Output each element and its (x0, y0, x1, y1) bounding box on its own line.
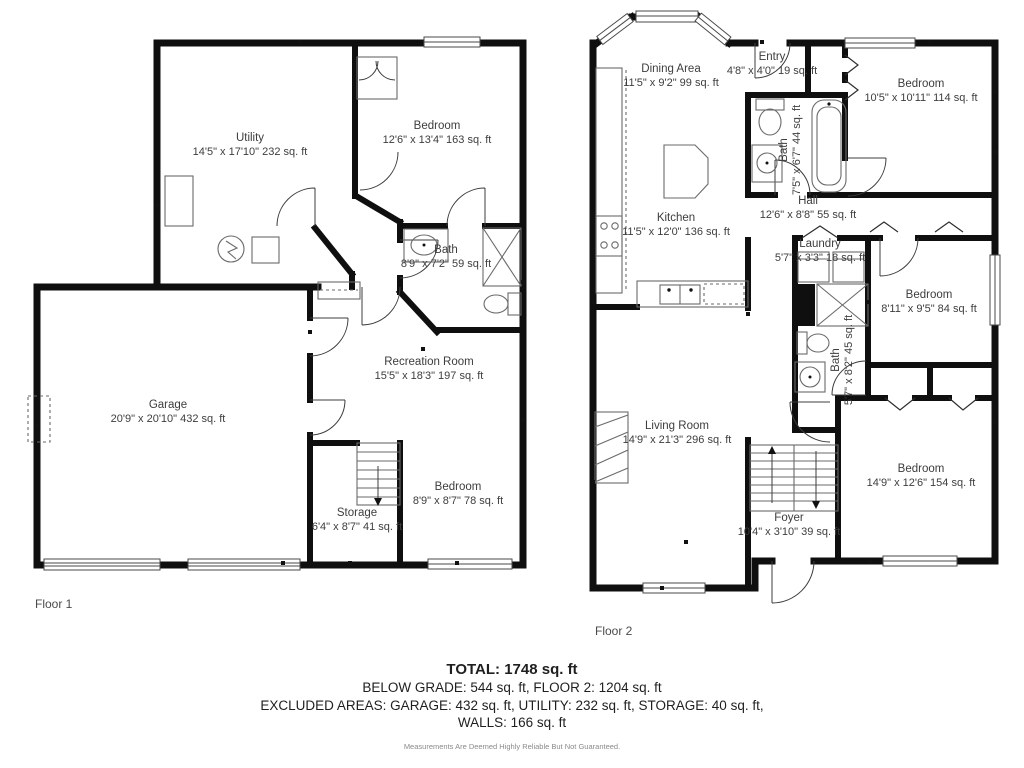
wall-chase (793, 284, 815, 326)
room-label-storage: Storage 6'4" x 8'7" 41 sq. ft (272, 506, 442, 534)
kitchen-island (664, 145, 708, 198)
floor1-caption: Floor 1 (35, 597, 72, 611)
toilet-tank (797, 332, 807, 354)
closet (357, 57, 397, 99)
kitchen-counter (596, 68, 622, 293)
equipment-box (252, 237, 279, 263)
room-label-bedroom-f1b: Bedroom 8'9" x 8'7" 78 sq. ft (373, 480, 543, 508)
room-label-laundry: Laundry 5'7" x 3'3" 18 sq. ft (735, 237, 905, 265)
closet-chevron-icon (885, 398, 915, 410)
door-arc-icon (447, 188, 485, 226)
room-label-entry: Entry 4'8" x 4'0" 19 sq. ft (687, 50, 857, 78)
door-arc-icon (310, 400, 345, 435)
summary-line2: BELOW GRADE: 544 sq. ft, FLOOR 2: 1204 s… (0, 679, 1024, 697)
room-label-bedroom-f2a: Bedroom 10'5" x 10'11" 114 sq. ft (836, 77, 1006, 105)
closet-chevron-icon (935, 222, 963, 232)
stairs-icon (750, 445, 838, 511)
room-label-living-room: Living Room 14'9" x 21'3" 296 sq. ft (592, 419, 762, 447)
room-label-recreation-room: Recreation Room 15'5" x 18'3" 197 sq. ft (344, 355, 514, 383)
summary-line4: WALLS: 166 sq. ft (0, 714, 1024, 732)
floorplan-drawing (0, 0, 1024, 768)
summary-disclaimer: Measurements Are Deemed Highly Reliable … (0, 742, 1024, 751)
toilet-icon (807, 334, 829, 352)
floorplan-page: Utility 14'5" x 17'10" 232 sq. ft Bedroo… (0, 0, 1024, 768)
summary-total: TOTAL: 1748 sq. ft (0, 661, 1024, 679)
water-heater-icon (165, 176, 193, 226)
area-summary: TOTAL: 1748 sq. ft BELOW GRADE: 544 sq. … (0, 661, 1024, 751)
dishwasher (704, 284, 744, 304)
room-label-garage: Garage 20'9" x 20'10" 432 sq. ft (83, 398, 253, 426)
closet-chevron-icon (949, 398, 978, 410)
toilet-tank (508, 293, 521, 315)
summary-line3: EXCLUDED AREAS: GARAGE: 432 sq. ft, UTIL… (0, 697, 1024, 715)
electrical-panel-icon (218, 236, 244, 262)
floor2-caption: Floor 2 (595, 624, 632, 638)
garage-door (44, 559, 160, 570)
room-label-foyer: Foyer 10'4" x 3'10" 39 sq. ft (704, 511, 874, 539)
room-label-bedroom-f2b: Bedroom 8'11" x 9'5" 84 sq. ft (844, 288, 1014, 316)
door-arc-icon (362, 287, 400, 325)
closet-chevron-icon (870, 222, 898, 232)
door-arc-icon (848, 158, 886, 196)
room-label-utility: Utility 14'5" x 17'10" 232 sq. ft (165, 131, 335, 159)
room-label-bath-f2-upper: Bath 7'5" x 6'7" 44 sq. ft (778, 105, 804, 195)
door-arc-icon (277, 188, 315, 226)
door-arc-icon (310, 318, 348, 356)
door-arc-icon (360, 152, 398, 190)
exterior-door-arc-icon (772, 561, 814, 603)
closet-double-door-icon (359, 61, 395, 80)
room-label-bath-f2-lower: Bath 5'7" x 8'2" 45 sq. ft (830, 315, 856, 405)
room-label-bedroom-f1a: Bedroom 12'6" x 13'4" 163 sq. ft (352, 119, 522, 147)
toilet-icon (484, 295, 508, 313)
room-label-kitchen: Kitchen 11'5" x 12'0" 136 sq. ft (591, 211, 761, 239)
room-label-bath-f1: Bath 8'9" x 7'2" 59 sq. ft (361, 243, 531, 271)
room-label-bedroom-f2c: Bedroom 14'9" x 12'6" 154 sq. ft (836, 462, 1006, 490)
